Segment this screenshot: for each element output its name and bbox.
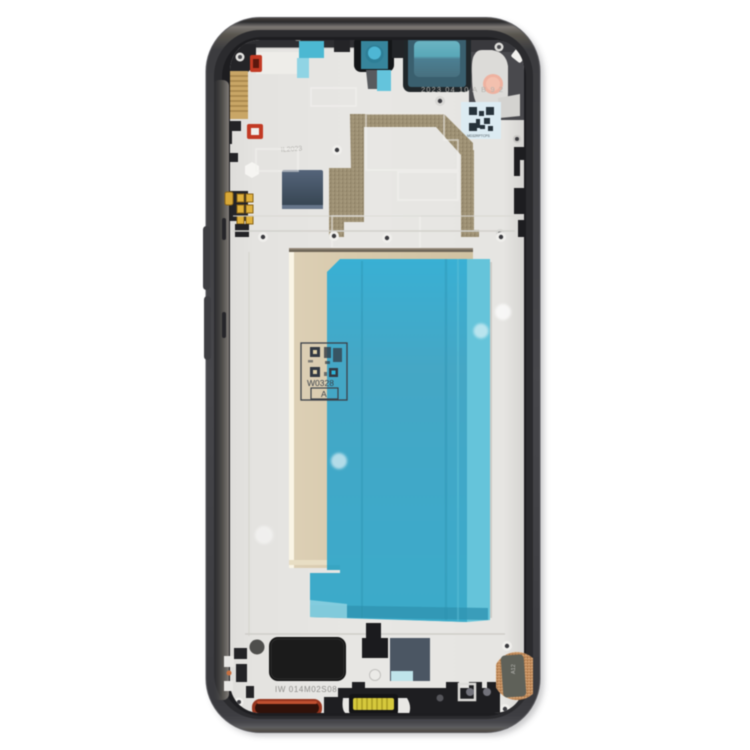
svg-text:A12: A12 [511, 664, 517, 674]
svg-text:IW 014M02S08: IW 014M02S08 [275, 685, 337, 694]
svg-text:MD32RPTCPS: MD32RPTCPS [467, 134, 491, 138]
svg-text:A: A [321, 389, 327, 399]
svg-text:2023 04 10 A B 9 2: 2023 04 10 A B 9 2 [421, 85, 504, 94]
svg-text:W0328: W0328 [307, 378, 334, 388]
